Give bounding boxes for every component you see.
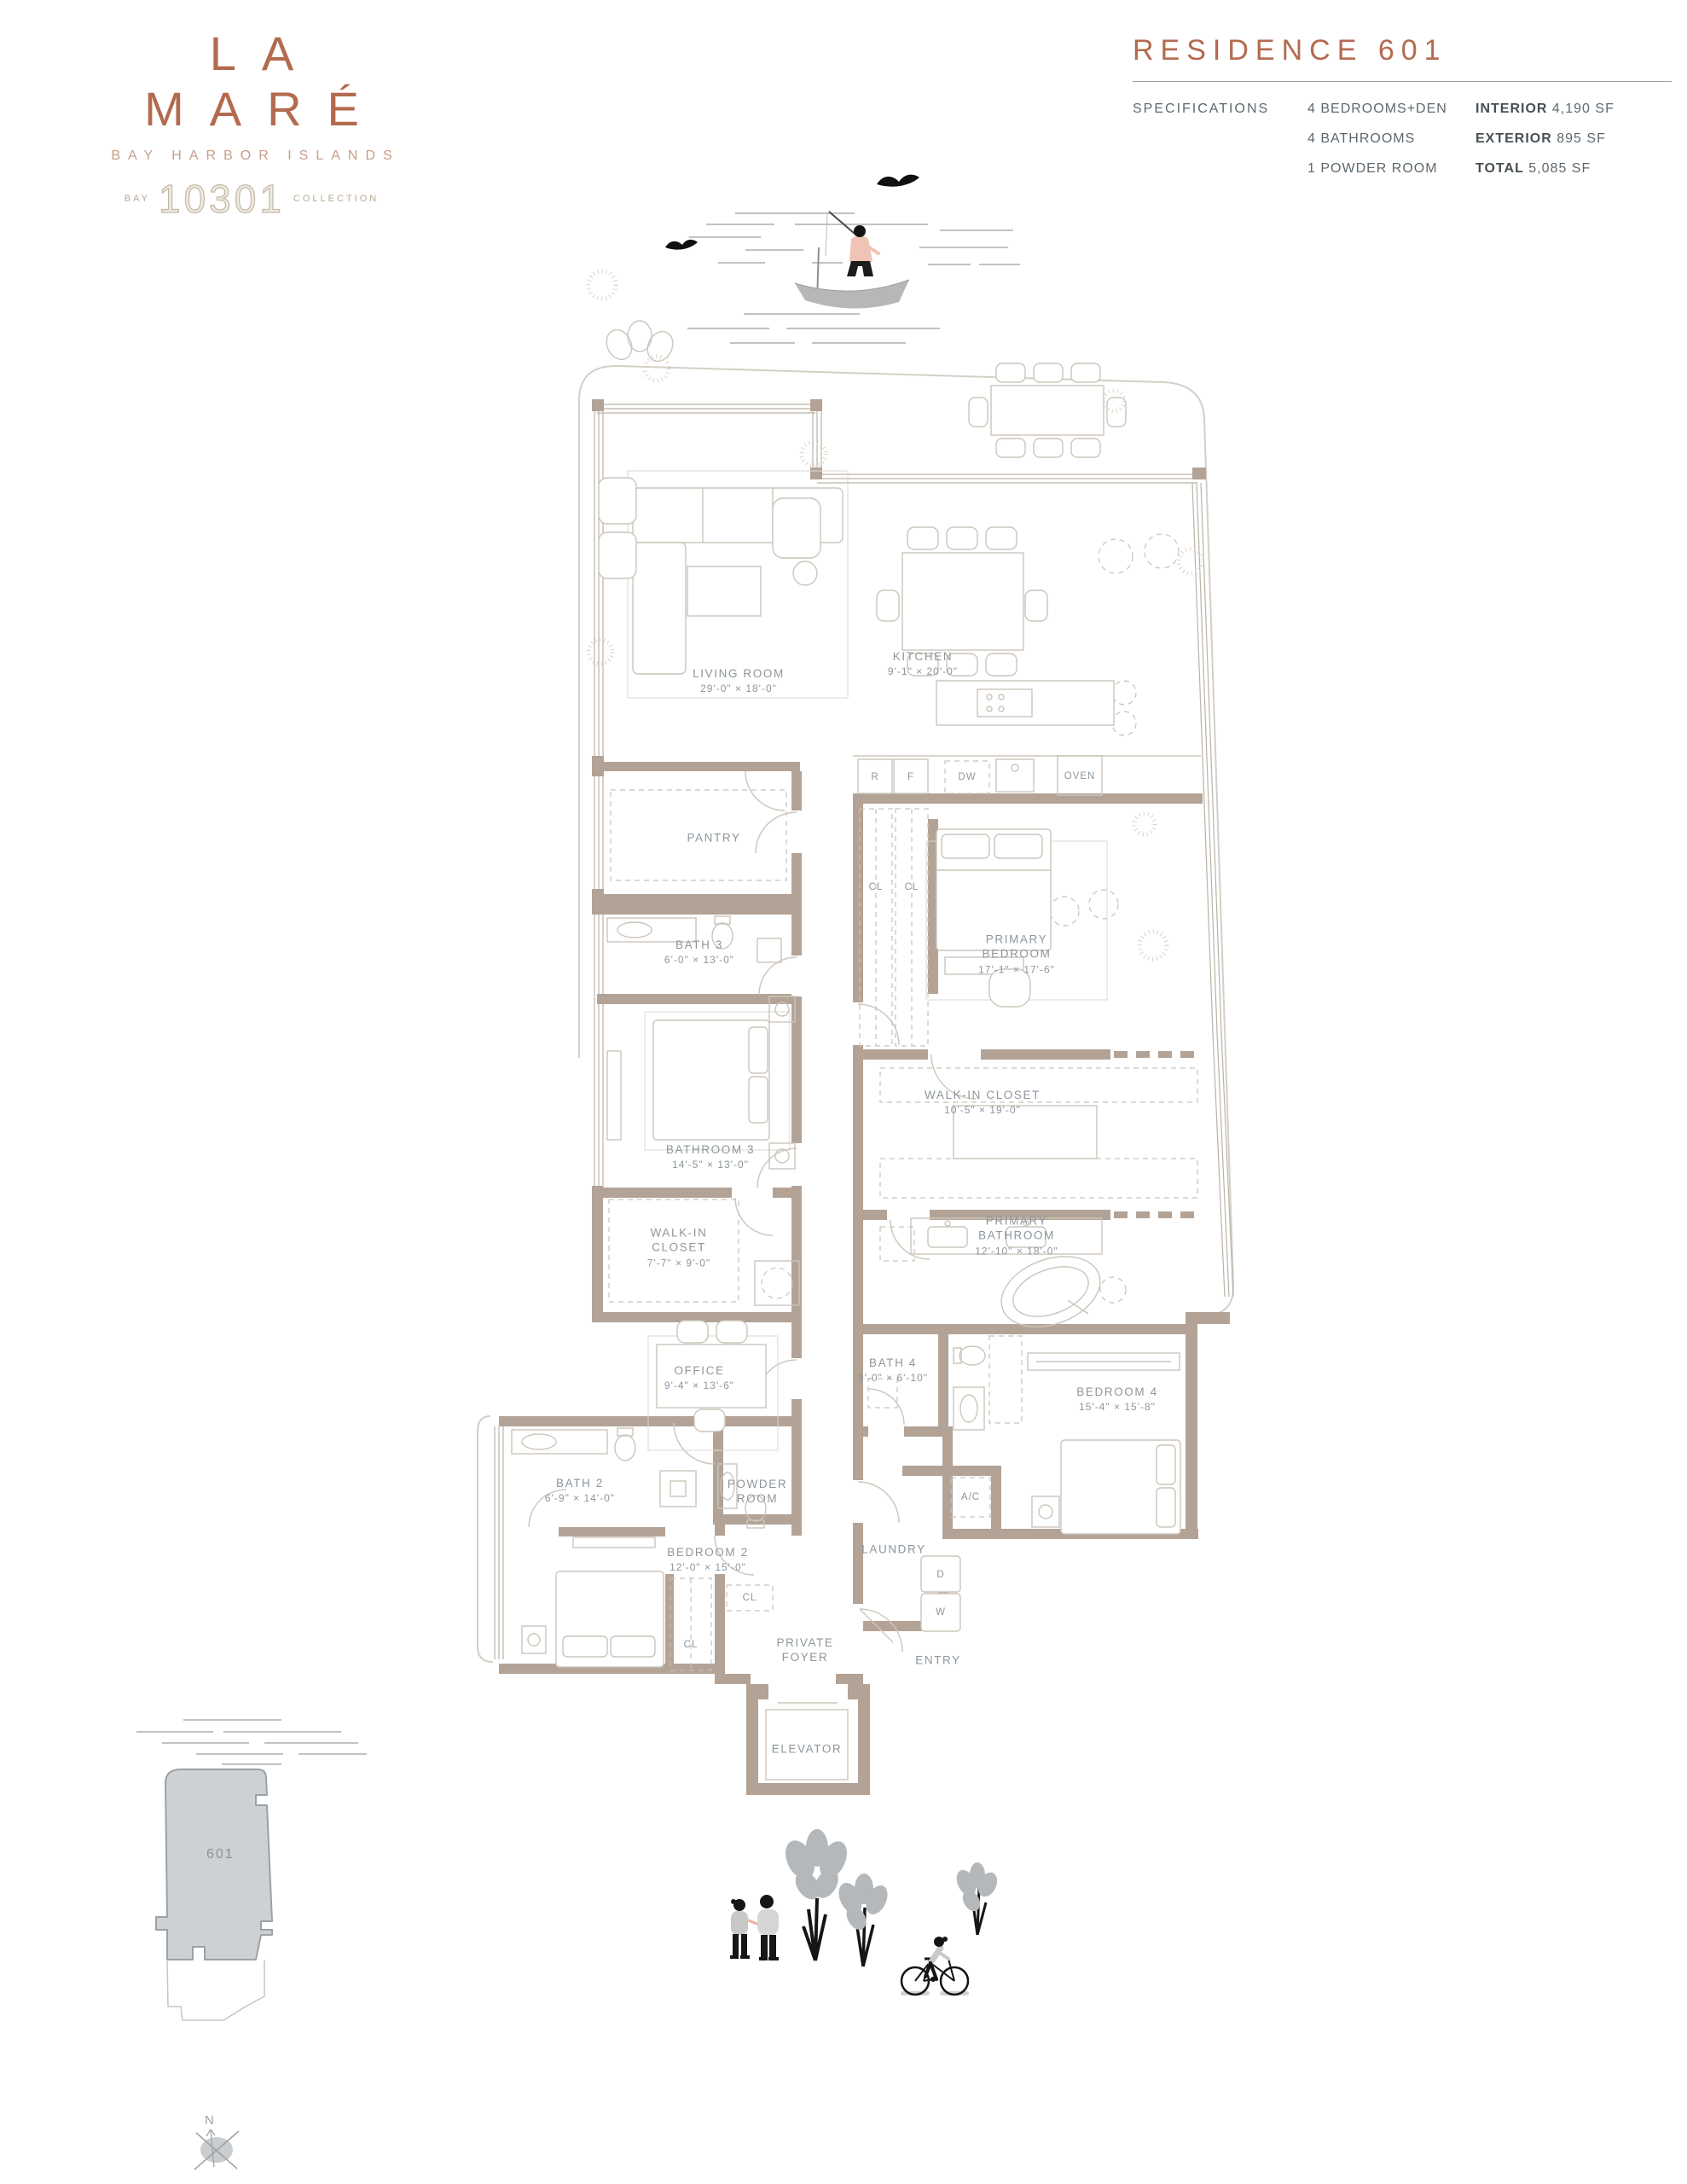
room-label: BATH 26'-9" × 14'-0": [545, 1477, 615, 1504]
compass-icon: N: [194, 2113, 239, 2169]
room-label: LAUNDRY: [861, 1543, 925, 1556]
room-label: KITCHEN9'-1" × 20'-0": [888, 650, 958, 677]
room-label: LIVING ROOM29'-0" × 18'-0": [693, 667, 785, 694]
small-label: DW: [958, 772, 976, 782]
unit-number: 601: [206, 1847, 235, 1862]
room-label: WALK-IN CLOSET7'-7" × 9'-0": [641, 1226, 717, 1269]
small-label: CL: [684, 1640, 699, 1650]
room-label: PRIMARY BEDROOM17'-1" × 17'-6": [970, 932, 1064, 976]
room-label: WALK-IN CLOSET10'-5" × 19'-0": [925, 1089, 1041, 1116]
small-label: CL: [869, 882, 884, 892]
small-label: A/C: [961, 1492, 980, 1502]
park-illustration: [699, 1826, 1041, 2013]
small-label: R: [871, 772, 878, 782]
unit-footprint: [156, 1769, 272, 1960]
small-label: OVEN: [1064, 771, 1096, 781]
room-label: BATH 36'-0" × 13'-0": [664, 938, 734, 966]
cyclist-icon: [901, 1937, 969, 1995]
room-label: BATHROOM 314'-5" × 13'-0": [666, 1143, 755, 1170]
room-label: ELEVATOR: [772, 1743, 843, 1756]
room-label: POWDER ROOM: [723, 1477, 791, 1506]
key-plan: 601 N: [102, 1702, 341, 2180]
room-label: PANTRY: [687, 832, 740, 845]
small-label: W: [936, 1607, 946, 1618]
small-label: F: [907, 772, 914, 782]
keyplan-water-icon: [136, 1720, 367, 1764]
couple-icon: [730, 1895, 779, 1960]
building-outline: [167, 1960, 264, 2020]
room-label: PRIVATE FOYER: [767, 1635, 843, 1664]
room-label: PRIMARY BATHROOM12'-10" × 18'-0": [965, 1214, 1068, 1258]
svg-text:N: N: [205, 2113, 214, 2128]
room-label: ENTRY: [915, 1654, 961, 1667]
floorplan-page: LA MARÉ BAY HARBOR ISLANDS BAY 10301 COL…: [0, 0, 1687, 2184]
small-label: D: [936, 1570, 944, 1580]
tree-icon: [780, 1829, 1000, 1966]
room-label: BEDROOM 212'-0" × 15'-0": [667, 1546, 748, 1573]
small-label: CL: [743, 1593, 757, 1603]
room-label: BATH 49'-0" × 6'-10": [858, 1356, 928, 1384]
room-label: BEDROOM 415'-4" × 15'-8": [1076, 1385, 1157, 1413]
room-label: OFFICE9'-4" × 13'-6": [664, 1364, 734, 1391]
small-label: CL: [905, 882, 919, 892]
